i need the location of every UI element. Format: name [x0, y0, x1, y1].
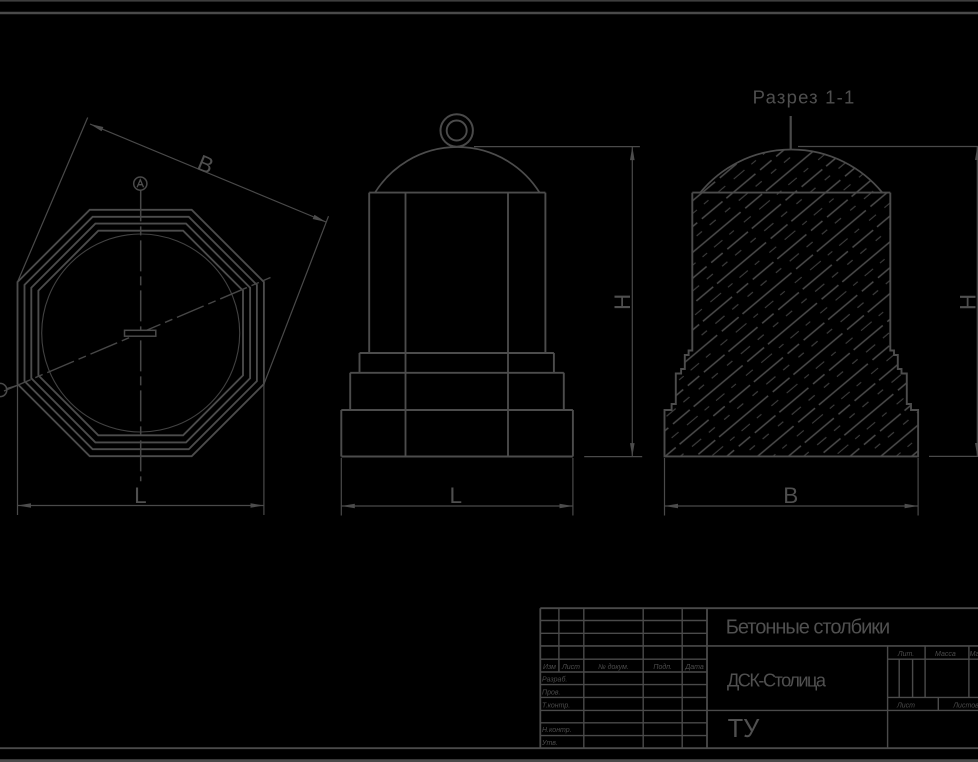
- svg-text:Утв.: Утв.: [541, 740, 558, 747]
- svg-text:Дата: Дата: [684, 664, 704, 671]
- svg-text:L: L: [134, 483, 147, 508]
- svg-text:Изм: Изм: [543, 664, 556, 671]
- svg-text:ТУ: ТУ: [728, 715, 761, 743]
- svg-text:H: H: [610, 294, 635, 310]
- svg-text:Пров.: Пров.: [542, 689, 561, 696]
- svg-text:L: L: [450, 483, 463, 508]
- svg-text:B: B: [783, 483, 798, 508]
- svg-text:Лист: Лист: [561, 664, 580, 671]
- svg-text:Лист: Лист: [896, 703, 915, 710]
- svg-text:Лит.: Лит.: [897, 651, 914, 658]
- svg-text:№ докум.: № докум.: [598, 663, 629, 671]
- svg-text:Масса: Масса: [935, 651, 956, 658]
- svg-text:Листов: Листов: [952, 703, 978, 710]
- svg-text:Подп.: Подп.: [653, 663, 672, 671]
- svg-text:Разраб.: Разраб.: [542, 676, 567, 684]
- svg-text:Бетонные столбики: Бетонные столбики: [726, 617, 891, 639]
- svg-text:Масштаб: Масштаб: [970, 650, 978, 658]
- svg-text:Н.контр.: Н.контр.: [542, 727, 572, 734]
- svg-text:Разрез 1-1: Разрез 1-1: [753, 87, 855, 108]
- svg-text:Т.контр.: Т.контр.: [542, 702, 570, 709]
- svg-text:H: H: [955, 294, 978, 310]
- svg-text:ДСК-Столица: ДСК-Столица: [727, 671, 827, 691]
